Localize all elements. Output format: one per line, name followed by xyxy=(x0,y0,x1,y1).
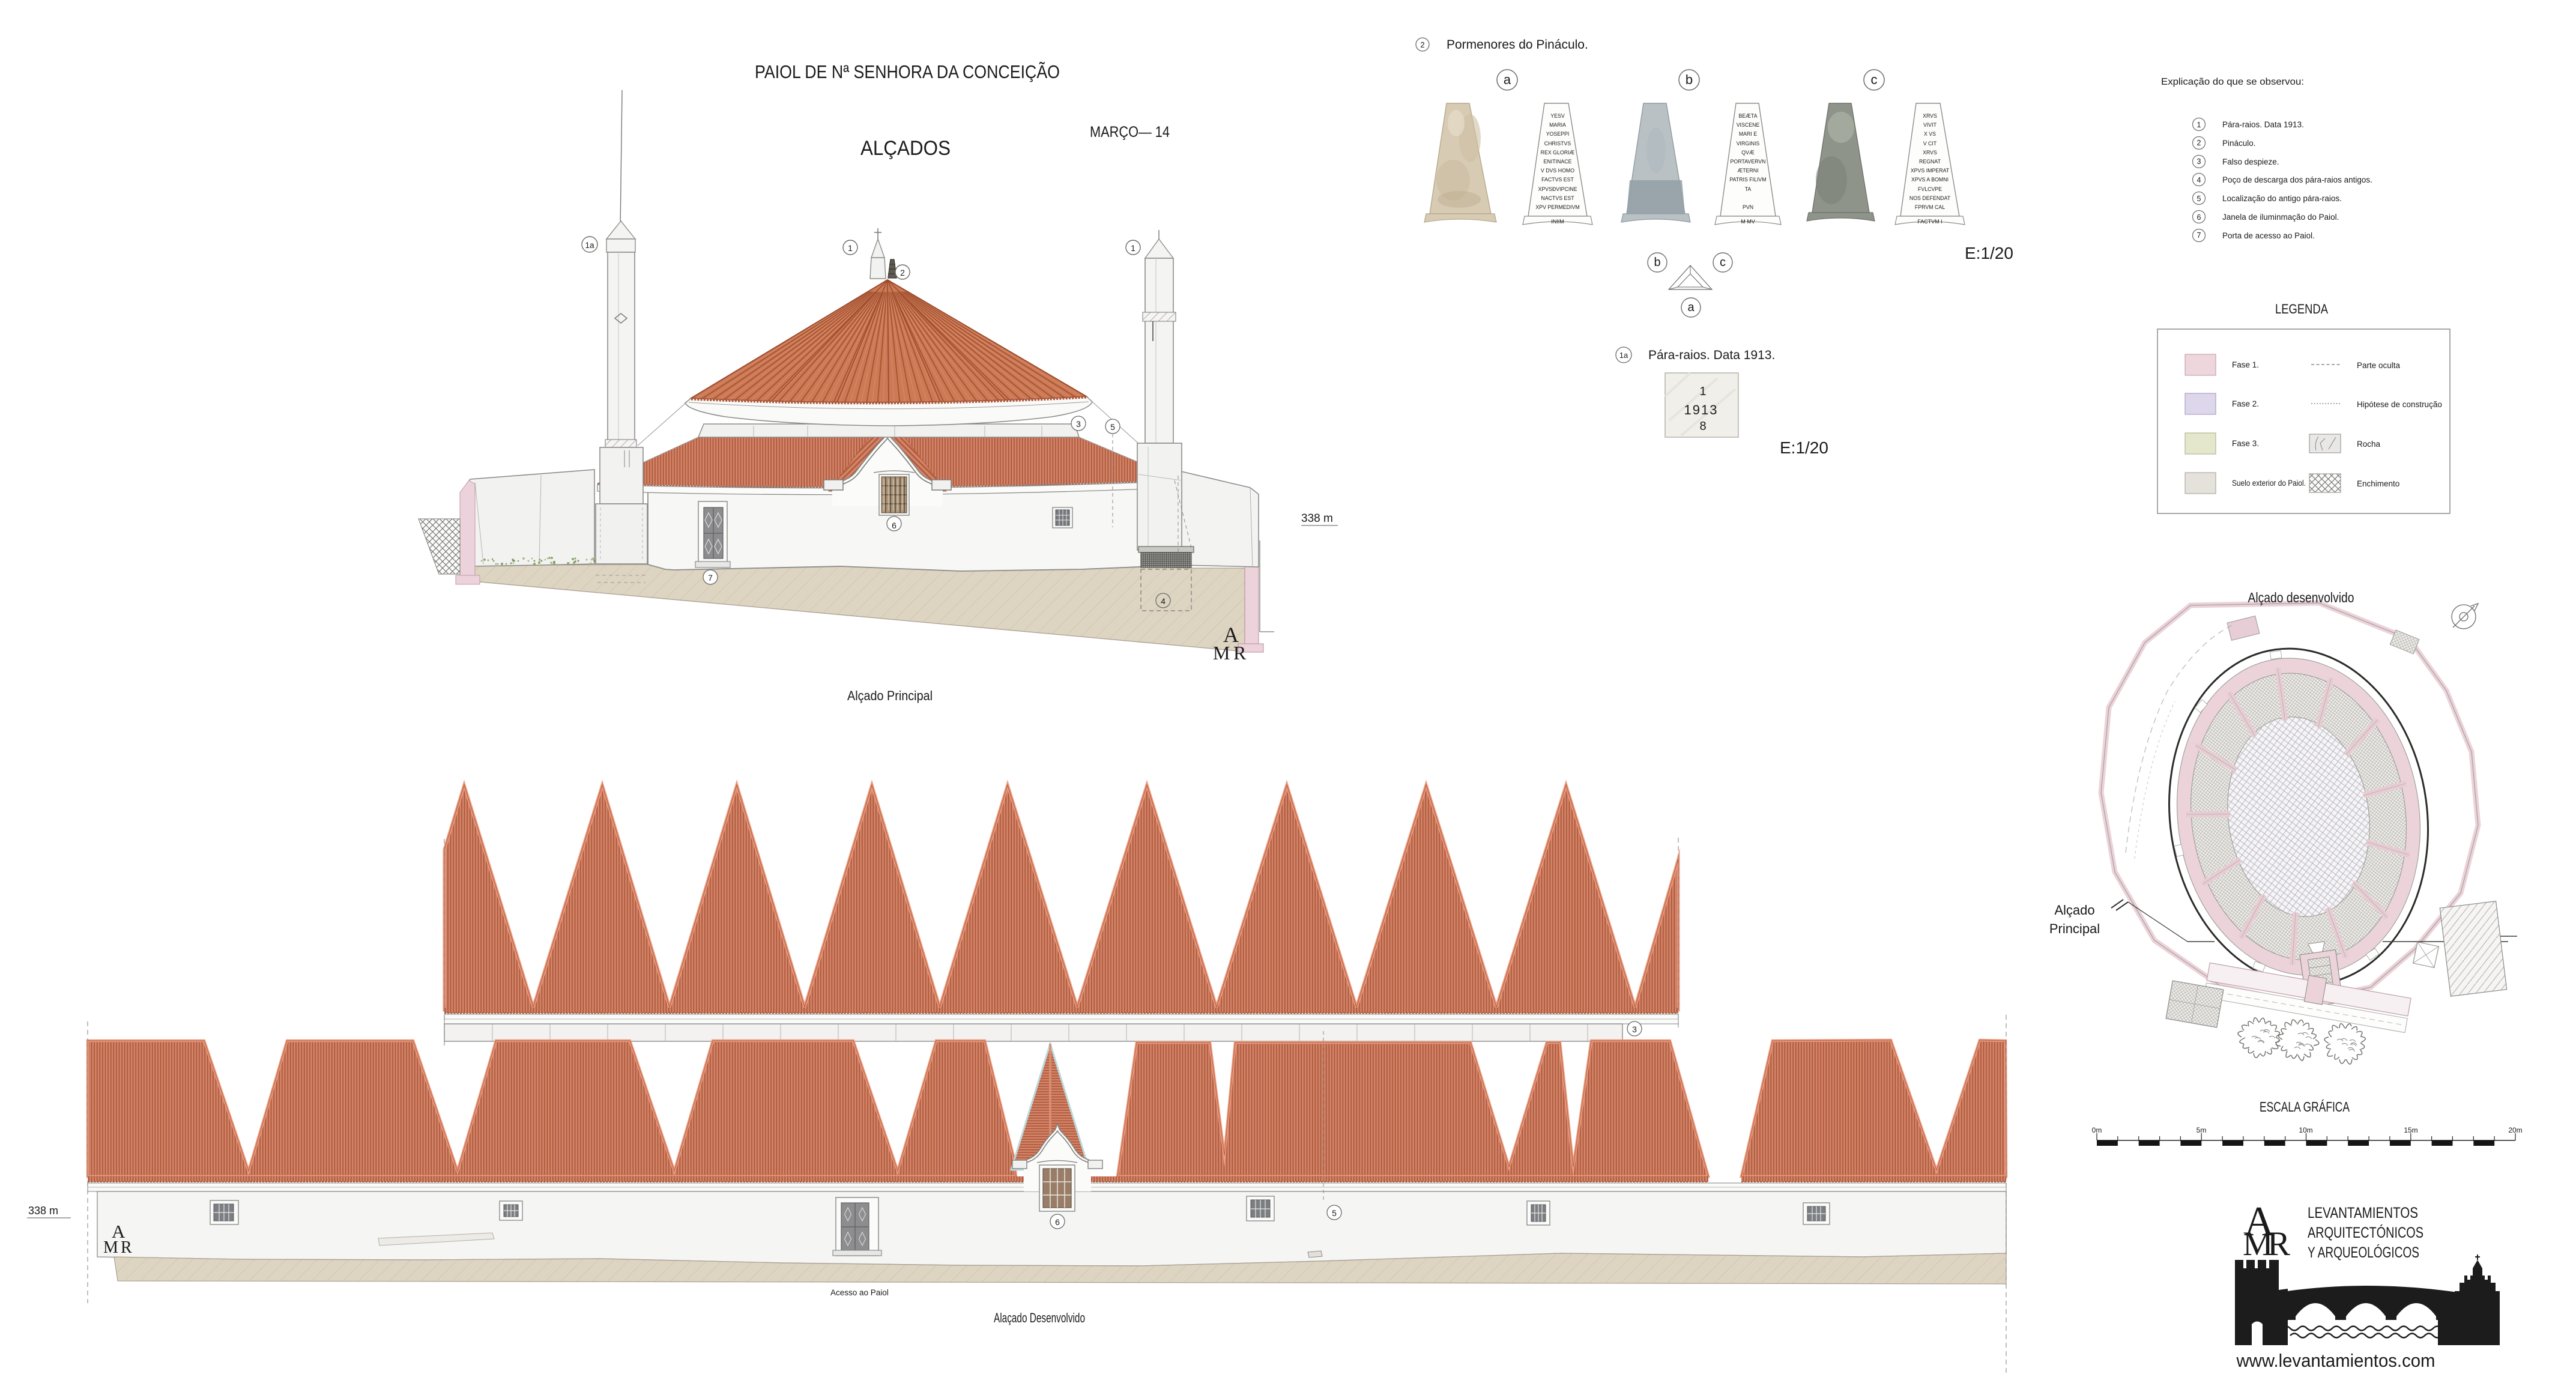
svg-text:Alçado desenvolvido: Alçado desenvolvido xyxy=(2248,590,2354,605)
svg-text:XPVSÐVIPCINE: XPVSÐVIPCINE xyxy=(1538,186,1577,192)
svg-text:6: 6 xyxy=(2197,213,2201,222)
svg-text:Localização do antigo pára-rai: Localização do antigo pára-raios. xyxy=(2222,194,2342,203)
svg-text:BEÆTA: BEÆTA xyxy=(1738,113,1757,119)
svg-text:Falso despieze.: Falso despieze. xyxy=(2222,157,2279,166)
svg-text:Janela de iluminmação do Paiol: Janela de iluminmação do Paiol. xyxy=(2222,213,2339,222)
svg-text:1: 1 xyxy=(1131,243,1135,253)
svg-text:E:1/20: E:1/20 xyxy=(1780,438,1828,457)
svg-text:0m: 0m xyxy=(2092,1126,2102,1134)
svg-text:Rocha: Rocha xyxy=(2357,440,2381,449)
svg-text:7: 7 xyxy=(708,573,713,583)
svg-text:6: 6 xyxy=(1055,1217,1060,1227)
svg-text:15m: 15m xyxy=(2404,1126,2417,1134)
svg-text:5m: 5m xyxy=(2197,1126,2207,1134)
svg-text:M: M xyxy=(103,1238,118,1257)
svg-text:2: 2 xyxy=(1420,40,1424,49)
svg-text:PVN: PVN xyxy=(1743,204,1753,210)
svg-text:5: 5 xyxy=(2197,195,2201,203)
svg-text:Alaçado Desenvolvido: Alaçado Desenvolvido xyxy=(994,1310,1085,1325)
svg-text:b: b xyxy=(1686,72,1693,87)
svg-text:ÆTERNI: ÆTERNI xyxy=(1737,168,1758,174)
svg-text:V CIT: V CIT xyxy=(1923,141,1937,147)
svg-text:CHRISTVS: CHRISTVS xyxy=(1544,141,1571,147)
svg-text:REX GLORIÆ: REX GLORIÆ xyxy=(1541,150,1575,156)
svg-text:M MV: M MV xyxy=(1741,219,1755,225)
svg-text:Hipótese de construção: Hipótese de construção xyxy=(2357,400,2442,409)
svg-text:Pináculo.: Pináculo. xyxy=(2222,139,2256,148)
svg-text:c: c xyxy=(1871,72,1878,87)
svg-text:Explicação do que se observou:: Explicação do que se observou: xyxy=(2161,77,2304,87)
svg-text:YOSEPPI: YOSEPPI xyxy=(1546,131,1570,137)
svg-text:X VS: X VS xyxy=(1924,131,1936,137)
svg-text:7: 7 xyxy=(2197,231,2201,240)
svg-text:INIIM: INIIM xyxy=(1551,219,1564,225)
svg-text:b: b xyxy=(1654,256,1660,269)
svg-text:3: 3 xyxy=(1076,419,1081,429)
svg-text:REGNAT: REGNAT xyxy=(1919,159,1941,165)
svg-text:ALÇADOS: ALÇADOS xyxy=(860,137,951,160)
svg-text:Alçado: Alçado xyxy=(2054,903,2094,918)
svg-text:Pára-raios. Data 1913.: Pára-raios. Data 1913. xyxy=(1648,348,1775,362)
svg-text:Porta de acesso ao Paiol.: Porta de acesso ao Paiol. xyxy=(2222,231,2315,240)
svg-text:MARÇO— 14: MARÇO— 14 xyxy=(1090,124,1170,141)
svg-text:5: 5 xyxy=(1332,1208,1337,1218)
svg-text:Acesso ao Paiol: Acesso ao Paiol xyxy=(830,1288,889,1297)
svg-text:338 m: 338 m xyxy=(1301,512,1333,525)
svg-text:VIVIT: VIVIT xyxy=(1923,122,1937,128)
svg-text:20m: 20m xyxy=(2508,1126,2522,1134)
svg-text:www.levantamientos.com: www.levantamientos.com xyxy=(2236,1350,2435,1371)
svg-text:PAIOL DE Nª SENHORA DA CON: PAIOL DE Nª SENHORA DA CONCEIÇÃO xyxy=(755,61,1060,82)
svg-text:NACTVS EST: NACTVS EST xyxy=(1541,195,1574,201)
svg-text:R: R xyxy=(121,1238,132,1257)
svg-text:1: 1 xyxy=(1699,385,1706,398)
svg-text:1a: 1a xyxy=(585,241,594,250)
svg-text:QVÆ: QVÆ xyxy=(1741,150,1755,156)
svg-text:TA: TA xyxy=(1745,186,1752,192)
svg-text:Suelo exterior do Paiol.: Suelo exterior do Paiol. xyxy=(2232,479,2306,488)
svg-text:XRVS: XRVS xyxy=(1923,150,1937,156)
svg-text:6: 6 xyxy=(892,521,896,530)
svg-text:XPV PERMEDIVM: XPV PERMEDIVM xyxy=(1535,204,1579,210)
svg-text:R: R xyxy=(1233,642,1247,664)
svg-text:Pára-raios. Data 1913.: Pára-raios. Data 1913. xyxy=(2222,120,2304,129)
svg-text:8: 8 xyxy=(1699,420,1706,433)
svg-text:2: 2 xyxy=(900,268,905,277)
svg-text:ENITINACE: ENITINACE xyxy=(1544,159,1572,165)
svg-text:a: a xyxy=(1687,301,1695,314)
svg-text:Enchimento: Enchimento xyxy=(2357,479,2399,488)
svg-text:Alçado Principal: Alçado Principal xyxy=(847,688,933,703)
svg-text:R: R xyxy=(2267,1225,2290,1263)
svg-text:XPVS A BOMNI: XPVS A BOMNI xyxy=(1911,177,1949,183)
svg-text:Y ARQUEOLÓGICOS: Y ARQUEOLÓGICOS xyxy=(2308,1244,2419,1261)
svg-text:4: 4 xyxy=(1161,596,1166,606)
svg-text:1913: 1913 xyxy=(1684,402,1719,417)
svg-text:5: 5 xyxy=(1110,422,1115,432)
svg-text:ESCALA GRÁFICA: ESCALA GRÁFICA xyxy=(2260,1099,2350,1115)
svg-text:4: 4 xyxy=(2197,176,2201,184)
svg-text:VISCENE: VISCENE xyxy=(1737,122,1760,128)
svg-text:Principal: Principal xyxy=(2049,921,2100,936)
svg-text:MARI E: MARI E xyxy=(1739,131,1757,137)
svg-text:PORTAVERVN: PORTAVERVN xyxy=(1731,159,1766,165)
svg-text:Fase 1.: Fase 1. xyxy=(2232,360,2259,369)
svg-text:Parte oculta: Parte oculta xyxy=(2357,361,2401,370)
svg-text:FACTVS EST: FACTVS EST xyxy=(1541,177,1574,183)
svg-text:VIRGINIS: VIRGINIS xyxy=(1737,141,1760,147)
svg-text:Fase 3.: Fase 3. xyxy=(2232,439,2259,448)
svg-text:PATRIS FILIVM: PATRIS FILIVM xyxy=(1729,177,1766,183)
svg-text:2: 2 xyxy=(2197,139,2201,147)
svg-text:3: 3 xyxy=(1632,1024,1637,1034)
svg-text:V DVS HOMO: V DVS HOMO xyxy=(1541,168,1574,174)
svg-text:XPVS IMPERAT: XPVS IMPERAT xyxy=(1911,168,1950,174)
svg-text:Fase 2.: Fase 2. xyxy=(2232,399,2259,408)
svg-text:1a: 1a xyxy=(1619,351,1628,360)
svg-text:LEVANTAMIENTOS: LEVANTAMIENTOS xyxy=(2308,1205,2418,1221)
svg-text:NOS DEFENDAT: NOS DEFENDAT xyxy=(1909,195,1951,201)
svg-text:c: c xyxy=(1720,256,1726,269)
svg-text:Pormenores do Pináculo.: Pormenores do Pináculo. xyxy=(1447,38,1588,52)
svg-text:XRVS: XRVS xyxy=(1923,113,1937,119)
svg-text:3: 3 xyxy=(2197,157,2201,166)
svg-text:1: 1 xyxy=(848,243,853,253)
svg-text:a: a xyxy=(1504,72,1511,87)
svg-text:MARIA: MARIA xyxy=(1549,122,1566,128)
svg-text:M: M xyxy=(1213,642,1230,664)
svg-text:1: 1 xyxy=(2197,121,2201,129)
svg-text:10m: 10m xyxy=(2299,1126,2312,1134)
svg-text:Poço de descarga dos pára-raio: Poço de descarga dos pára-raios antigos. xyxy=(2222,175,2372,184)
svg-text:YESV: YESV xyxy=(1550,113,1565,119)
svg-text:338 m: 338 m xyxy=(28,1205,58,1217)
svg-text:LEGENDA: LEGENDA xyxy=(2275,301,2328,316)
svg-text:FPRVM CAL: FPRVM CAL xyxy=(1915,204,1945,210)
svg-text:FACTVM I: FACTVM I xyxy=(1917,219,1943,225)
svg-text:E:1/20: E:1/20 xyxy=(1965,244,2013,262)
svg-text:FVLCVPE: FVLCVPE xyxy=(1918,186,1942,192)
svg-text:ARQUITECTÓNICOS: ARQUITECTÓNICOS xyxy=(2308,1224,2423,1241)
